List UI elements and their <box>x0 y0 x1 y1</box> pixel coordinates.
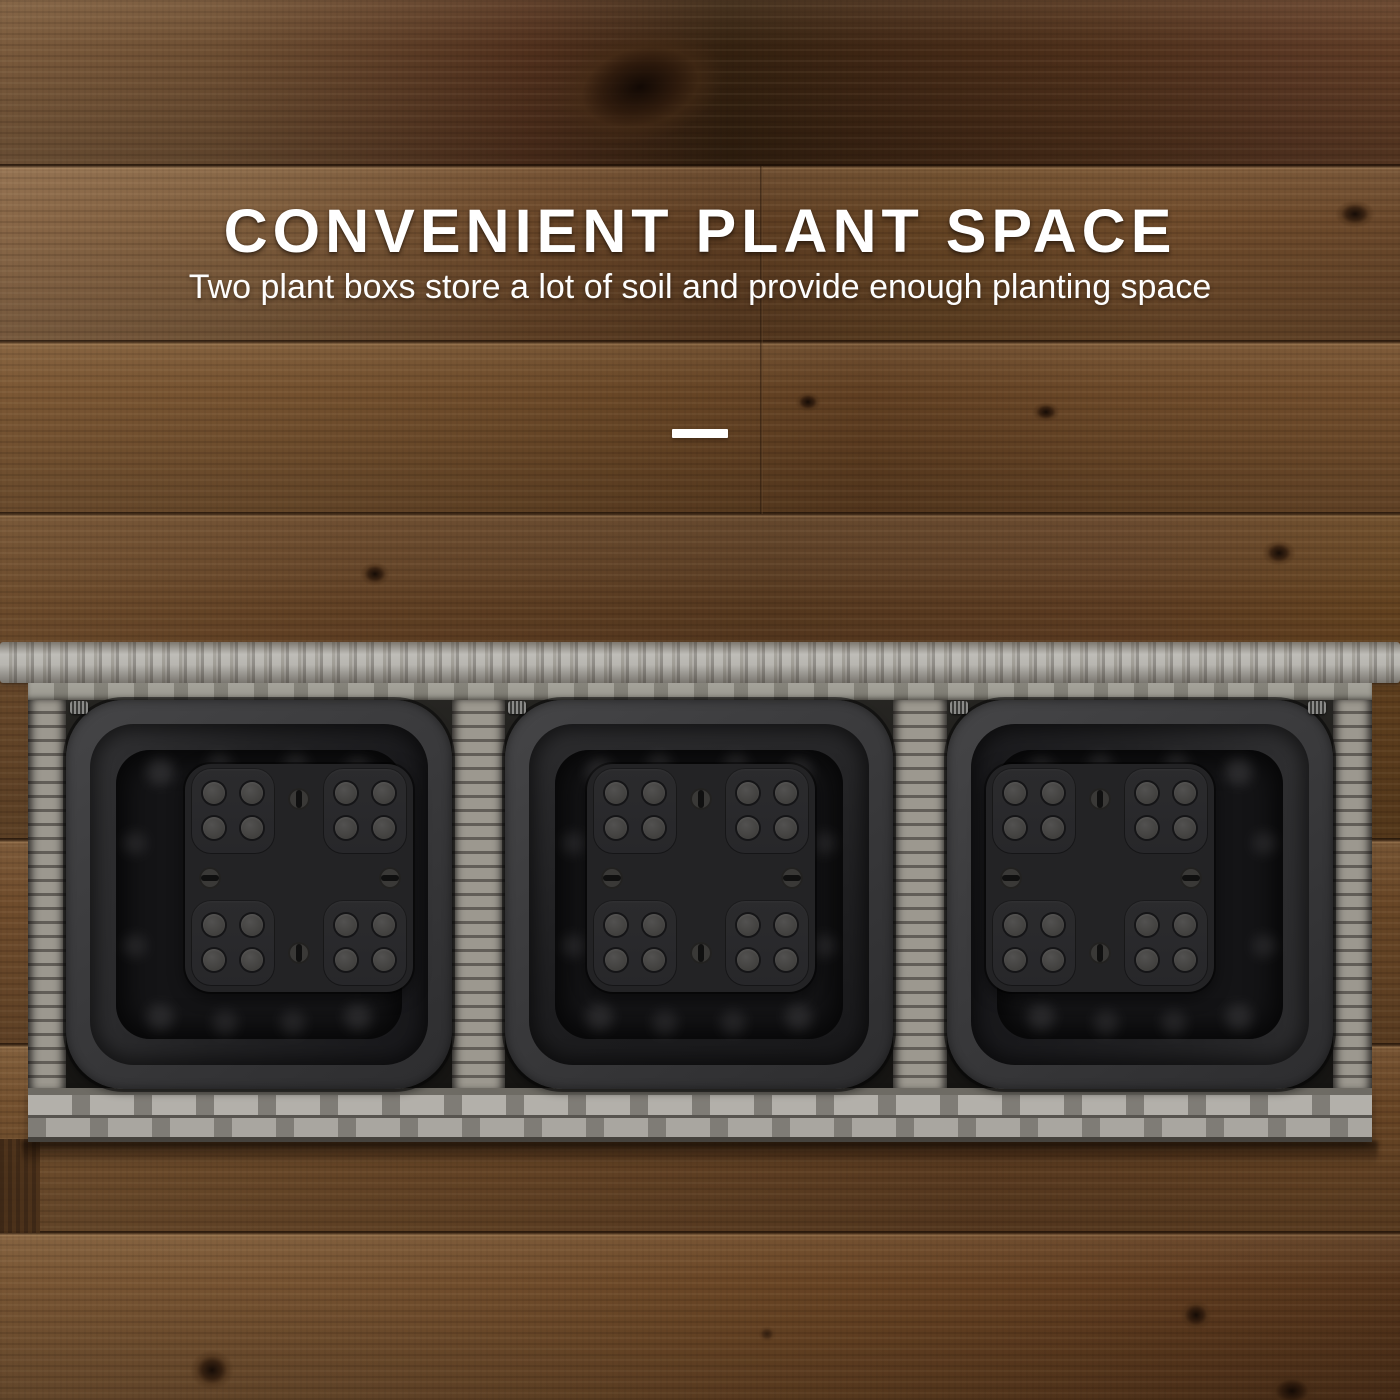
wood-knot <box>1268 1374 1316 1400</box>
screw-slot <box>1180 867 1202 889</box>
pot-pad <box>593 768 677 854</box>
drainage-hole <box>737 914 759 936</box>
screw-slot <box>1089 788 1111 810</box>
screw-slot <box>781 867 803 889</box>
wood-knot <box>1180 1300 1212 1330</box>
pot-pad <box>593 900 677 986</box>
planter-divider <box>893 700 947 1090</box>
pot-base-plate <box>986 764 1214 992</box>
drainage-hole <box>241 817 263 839</box>
drainage-hole <box>1042 817 1064 839</box>
pot-pad <box>725 768 809 854</box>
drainage-hole <box>203 914 225 936</box>
pot-pad <box>323 900 407 986</box>
plank-seam <box>0 1231 1400 1237</box>
screw-slot <box>379 867 401 889</box>
drainage-hole <box>643 914 665 936</box>
drainage-hole <box>775 782 797 804</box>
drainage-hole <box>737 782 759 804</box>
drainage-hole <box>1174 782 1196 804</box>
spring-clip <box>70 701 88 714</box>
spring-clip <box>1308 701 1326 714</box>
product-banner: CONVENIENT PLANT SPACE Two plant boxs st… <box>0 0 1400 1400</box>
plank-seam <box>0 340 1400 346</box>
drainage-hole <box>203 817 225 839</box>
drainage-hole <box>643 949 665 971</box>
drainage-hole <box>643 817 665 839</box>
screw-slot <box>288 788 310 810</box>
drainage-hole <box>1004 782 1026 804</box>
wood-plank <box>0 342 1400 514</box>
screw-slot <box>288 942 310 964</box>
pot-pad <box>1124 768 1208 854</box>
pot-base-plate <box>587 764 815 992</box>
drainage-hole <box>241 782 263 804</box>
drainage-hole <box>737 817 759 839</box>
drainage-hole <box>1042 914 1064 936</box>
drainage-hole <box>1004 949 1026 971</box>
wood-knot <box>360 562 390 586</box>
wood-knot <box>190 1350 234 1390</box>
drainage-hole <box>241 949 263 971</box>
drainage-hole <box>241 914 263 936</box>
pot-base-plate <box>185 764 413 992</box>
pot-pad <box>725 900 809 986</box>
drainage-hole <box>605 817 627 839</box>
drainage-hole <box>1174 817 1196 839</box>
pot-pad <box>191 900 275 986</box>
plant-pot <box>66 700 452 1089</box>
screw-slot <box>1089 942 1111 964</box>
screw-slot <box>690 942 712 964</box>
drainage-hole <box>775 914 797 936</box>
drainage-hole <box>1174 914 1196 936</box>
screw-slot <box>601 867 623 889</box>
drainage-hole <box>335 914 357 936</box>
pot-pad <box>323 768 407 854</box>
plank-seam <box>0 512 1400 518</box>
planter-shadow <box>22 1141 1378 1165</box>
drainage-hole <box>373 817 395 839</box>
drainage-hole <box>737 949 759 971</box>
drainage-hole <box>203 782 225 804</box>
drainage-hole <box>643 782 665 804</box>
drainage-hole <box>1136 949 1158 971</box>
drainage-hole <box>1042 782 1064 804</box>
drainage-hole <box>775 949 797 971</box>
drainage-hole <box>335 949 357 971</box>
spring-clip <box>950 701 968 714</box>
drainage-hole <box>373 949 395 971</box>
drainage-hole <box>1136 817 1158 839</box>
drainage-hole <box>605 782 627 804</box>
drainage-hole <box>1004 914 1026 936</box>
divider-bar <box>672 429 728 438</box>
planter-divider <box>452 700 505 1090</box>
planter-right-edge <box>1333 700 1372 1090</box>
wood-knot <box>758 1326 776 1342</box>
drainage-hole <box>605 949 627 971</box>
screw-slot <box>199 867 221 889</box>
pot-pad <box>992 768 1076 854</box>
drainage-hole <box>1004 817 1026 839</box>
pot-pad <box>992 900 1076 986</box>
screw-slot <box>690 788 712 810</box>
plant-pot <box>505 700 893 1089</box>
planter-top-rail <box>0 642 1400 683</box>
drainage-hole <box>203 949 225 971</box>
drainage-hole <box>1174 949 1196 971</box>
spring-clip <box>508 701 526 714</box>
wood-knot <box>1032 402 1060 422</box>
planter-bottom-rail <box>28 1088 1372 1142</box>
drainage-hole <box>605 914 627 936</box>
drainage-hole <box>1136 782 1158 804</box>
drainage-hole <box>1136 914 1158 936</box>
pot-pad <box>191 768 275 854</box>
plank-seam <box>0 164 1400 170</box>
planter-left-edge <box>28 700 66 1090</box>
subheadline: Two plant boxs store a lot of soil and p… <box>0 266 1400 308</box>
drainage-hole <box>1042 949 1064 971</box>
pot-pad <box>1124 900 1208 986</box>
headline: CONVENIENT PLANT SPACE <box>0 200 1400 262</box>
screw-slot <box>1000 867 1022 889</box>
wood-knot <box>795 392 821 412</box>
drainage-hole <box>373 782 395 804</box>
wood-knot <box>1262 540 1296 566</box>
drainage-hole <box>335 817 357 839</box>
drainage-hole <box>775 817 797 839</box>
plant-pot <box>947 700 1333 1089</box>
drainage-hole <box>373 914 395 936</box>
drainage-hole <box>335 782 357 804</box>
